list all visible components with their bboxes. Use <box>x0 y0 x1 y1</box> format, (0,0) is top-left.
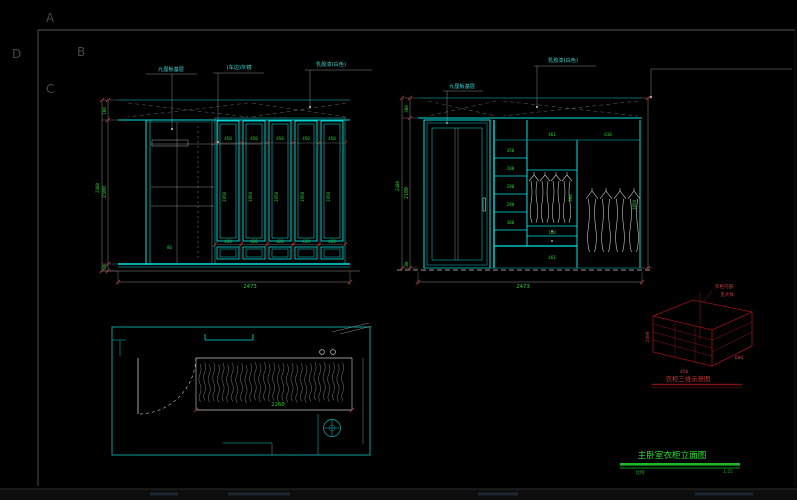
wardrobe-hatch <box>199 362 344 403</box>
dim-label: 350 <box>507 148 515 153</box>
door-width-dim: 420 <box>276 239 284 244</box>
view-label-b: B <box>77 45 85 59</box>
dim-label: 80 <box>404 261 409 267</box>
drawing-title: 主卧室衣柜立面图 <box>638 449 707 461</box>
side-cabinet: 86 <box>146 120 262 265</box>
dim-label: 2473 <box>516 284 529 290</box>
wardrobe-door: 1950 450 420 <box>243 121 265 259</box>
dim-label: 280 <box>507 184 515 189</box>
dim-label: 2260 <box>271 402 284 408</box>
sketch-dim: 600 <box>735 355 744 361</box>
wardrobe-door: 1950 450 420 <box>217 121 239 259</box>
sketch-note: 见大样 <box>720 291 734 298</box>
dim-label: 2100 <box>404 187 410 199</box>
closed-door-panel <box>424 120 490 268</box>
dim-label: 80 <box>102 264 107 270</box>
door-height-dim: 1950 <box>326 191 331 202</box>
dim-label: 461 <box>548 132 556 137</box>
dim-label: 2473 <box>243 284 256 290</box>
dim-label: 180 <box>548 230 556 235</box>
isometric-sketch: 衣柜内部 见大样 2400 450 600 衣柜三维示意图 <box>645 283 752 388</box>
dim-label: 300 <box>507 220 515 225</box>
left-dimension-chain: 300 2100 80 2480 <box>395 98 418 270</box>
dim-label: 100 <box>102 107 107 115</box>
dim-label: 300 <box>404 105 409 113</box>
scale-value: 1:25 <box>723 469 733 475</box>
wardrobe-door: 1950 450 420 <box>321 121 343 259</box>
left-elevation: 九厘板基层 (车边)灰镜 乳胶漆(白色) 86 <box>95 60 372 290</box>
title-block: 主卧室衣柜立面图 比例 1:25 <box>620 449 740 476</box>
status-text-hint <box>695 493 753 496</box>
hanger-icons <box>529 172 572 223</box>
sketch-caption: 衣柜三维示意图 <box>666 374 711 383</box>
door-height-dim: 1950 <box>248 191 253 202</box>
status-bar[interactable] <box>0 489 797 500</box>
cad-app-window: A D B C 九厘板基层 (车边)灰镜 乳胶漆(白色) <box>0 0 797 500</box>
callout-label: 九厘板基层 <box>158 65 184 73</box>
door-height-dim: 1950 <box>274 191 279 202</box>
door-width-dim: 420 <box>328 239 336 244</box>
dim-label: 2480 <box>95 182 100 193</box>
view-label-c: C <box>46 82 54 96</box>
dim-label: 2480 <box>395 180 400 191</box>
interior-shelving: 350 280 280 280 300 461 610 900 180 461 … <box>494 120 640 268</box>
door-height-dim: 1950 <box>222 191 227 202</box>
sketch-dim: 2400 <box>645 331 651 342</box>
dim-label: 610 <box>604 132 612 137</box>
sketch-note: 衣柜内部 <box>715 283 734 290</box>
door-width-dim: 420 <box>224 239 232 244</box>
scale-label: 比例 <box>636 469 645 476</box>
door-width-dim: 420 <box>302 239 310 244</box>
wardrobe-doors: 1950 450 420 1950 450 420 1950 <box>215 118 345 264</box>
callout-label: 九厘板基层 <box>449 82 475 90</box>
compass-symbol-icon <box>324 420 341 437</box>
right-elevation: 乳胶漆(白色) 九厘板基层 <box>395 56 792 290</box>
dim-label: 1050 <box>632 199 637 210</box>
dim-label: 461 <box>548 255 556 260</box>
cabinet-dim: 86 <box>167 245 173 250</box>
dim-label: 280 <box>507 166 515 171</box>
status-text-hint <box>478 493 518 496</box>
callout-label: 乳胶漆(白色) <box>548 56 578 64</box>
door-width-dim: 450 <box>250 136 258 141</box>
dim-label: 900 <box>568 194 573 202</box>
left-dimension-chain: 100 2300 80 2480 <box>95 100 118 271</box>
status-text-hint <box>228 493 290 496</box>
bottom-dimension: 2473 <box>418 272 642 290</box>
corner-view-labels: A D B C <box>12 11 85 96</box>
dim-label: 280 <box>507 202 515 207</box>
hanger-icons <box>586 188 640 252</box>
wardrobe-door: 1950 450 420 <box>295 121 317 259</box>
status-text-hint <box>150 493 178 496</box>
view-label-a: A <box>46 11 55 25</box>
callout-label: (车边)灰镜 <box>227 63 252 71</box>
sheet-frame <box>38 30 795 486</box>
door-height-dim: 1950 <box>300 191 305 202</box>
callout-label: 乳胶漆(白色) <box>316 60 346 68</box>
door-width-dim: 450 <box>302 136 310 141</box>
door-width-dim: 450 <box>328 136 336 141</box>
wardrobe-door: 1950 450 420 <box>269 121 291 259</box>
plan-view: 2260 <box>112 323 372 455</box>
door-width-dim: 450 <box>276 136 284 141</box>
dim-label: 2300 <box>102 186 108 198</box>
view-label-d: D <box>12 47 21 61</box>
dimension-ticks <box>100 96 650 412</box>
bottom-dimension: 2473 <box>118 271 350 290</box>
door-width-dim: 420 <box>250 239 258 244</box>
door-width-dim: 450 <box>224 136 232 141</box>
cad-drawing-canvas[interactable]: A D B C 九厘板基层 (车边)灰镜 乳胶漆(白色) <box>0 0 797 500</box>
